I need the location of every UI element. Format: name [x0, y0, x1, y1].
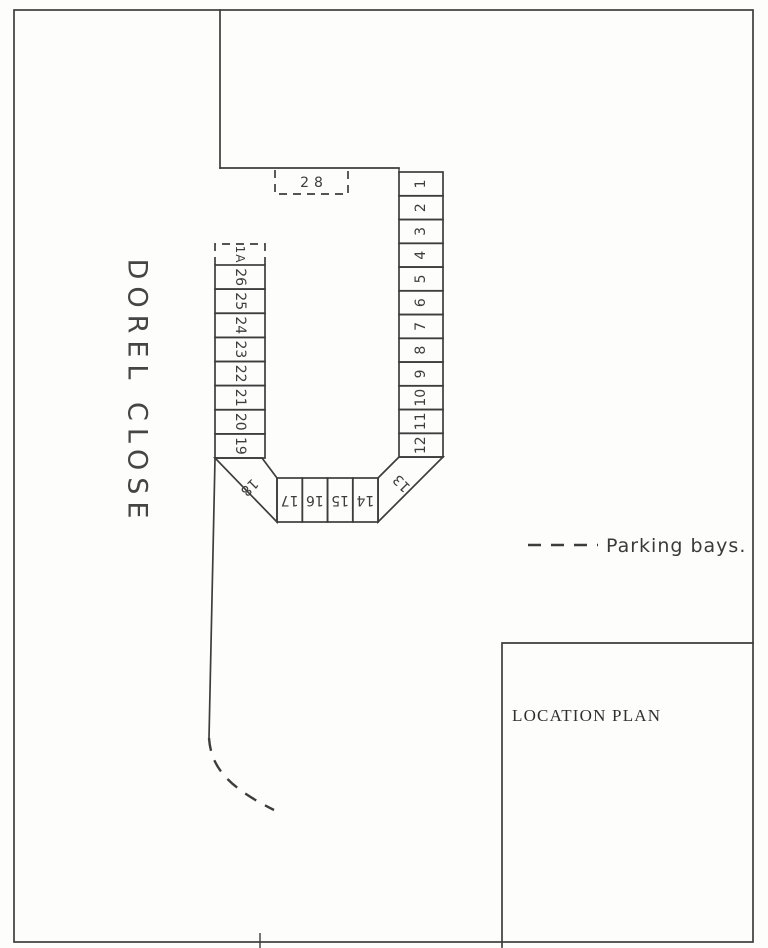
- parking-bay: 15: [328, 478, 353, 522]
- parking-bay: 2: [399, 196, 443, 220]
- parking-bay: 23: [215, 337, 265, 361]
- parking-bay-label: 19: [232, 437, 248, 455]
- parking-bay-label: 21: [232, 389, 248, 407]
- parking-bay: 3: [399, 220, 443, 244]
- boundary-line-dashed-curve: [209, 738, 274, 810]
- parking-bay: 5: [399, 267, 443, 291]
- parking-bay-dashed-1a: 1A: [215, 244, 265, 265]
- parking-bay-left-column: 26 25 24 23 22 21 20 19: [215, 265, 265, 458]
- parking-bay-label: 10: [413, 389, 429, 407]
- location-plan-box: LOCATION PLAN: [502, 643, 753, 947]
- parking-bay-label: 14: [356, 492, 374, 508]
- parking-bay: 17: [277, 478, 302, 522]
- parking-bay: 9: [399, 362, 443, 386]
- parking-bay: 7: [399, 315, 443, 339]
- parking-bay-corner-left: 18: [215, 458, 277, 522]
- parking-bay-label: 4: [413, 251, 429, 260]
- parking-bay-label: 20: [232, 413, 248, 431]
- parking-bay: 19: [215, 434, 265, 458]
- parking-bay: 20: [215, 410, 265, 434]
- parking-bay-label: 7: [413, 322, 429, 331]
- parking-bay-bottom-row: 17 16 15 14: [277, 478, 378, 522]
- parking-bay: 8: [399, 338, 443, 362]
- parking-bay-label: 5: [413, 274, 429, 283]
- location-plan-border: [502, 643, 753, 947]
- boundary-line-vertical-long: [209, 459, 215, 738]
- parking-bay-corner-right: 13: [378, 457, 443, 522]
- parking-bay-label: 8: [413, 346, 429, 355]
- parking-bay-label: 12: [413, 436, 429, 454]
- parking-bay-label: 3: [413, 227, 429, 236]
- parking-bay-label: 18: [237, 475, 261, 499]
- parking-bay-label: 2: [413, 203, 429, 212]
- parking-bay: 26: [215, 265, 265, 289]
- street-name-label: DOREL CLOSE: [122, 259, 153, 526]
- parking-bay-label: 11: [413, 412, 429, 430]
- parking-bay-label: 1A: [233, 246, 247, 264]
- parking-bay-label: 17: [281, 492, 299, 508]
- parking-bay-label: 28: [300, 175, 328, 191]
- legend-label: Parking bays.: [606, 535, 746, 557]
- parking-bay-label: 25: [232, 292, 248, 310]
- parking-bay-label: 26: [232, 268, 248, 286]
- location-plan-label: LOCATION PLAN: [512, 706, 661, 725]
- parking-bay-label: 22: [232, 365, 248, 383]
- parking-bay: 24: [215, 313, 265, 337]
- parking-bay-label: 16: [306, 492, 324, 508]
- parking-bay-label: 9: [413, 369, 429, 378]
- parking-bay-right-column: 1 2 3 4 5 6 7 8: [399, 172, 443, 457]
- parking-bay-label: 15: [331, 492, 349, 508]
- parking-bay-label: 1: [413, 179, 429, 188]
- plot-boundary: [209, 10, 399, 948]
- parking-bay-label: 23: [232, 340, 248, 358]
- site-plan-drawing: DOREL CLOSE 1 2 3 4 5 6 7: [0, 0, 768, 948]
- parking-bay: 12: [399, 433, 443, 457]
- parking-bay-dashed-28: 28: [275, 170, 348, 194]
- parking-bay: 1: [399, 172, 443, 196]
- scanned-plan-page: DOREL CLOSE 1 2 3 4 5 6 7: [0, 0, 768, 948]
- parking-bay: 6: [399, 291, 443, 315]
- parking-bay: 22: [215, 362, 265, 386]
- parking-bay: 16: [302, 478, 327, 522]
- legend: Parking bays.: [528, 535, 746, 557]
- parking-bay: 10: [399, 386, 443, 410]
- parking-bay-label: 6: [413, 298, 429, 307]
- parking-bay: 21: [215, 386, 265, 410]
- parking-bay: 11: [399, 410, 443, 434]
- parking-bay: 14: [353, 478, 378, 522]
- parking-bay: 4: [399, 243, 443, 267]
- parking-bay-label: 13: [390, 471, 414, 495]
- parking-bay: 25: [215, 289, 265, 313]
- parking-bay-label: 24: [232, 316, 248, 334]
